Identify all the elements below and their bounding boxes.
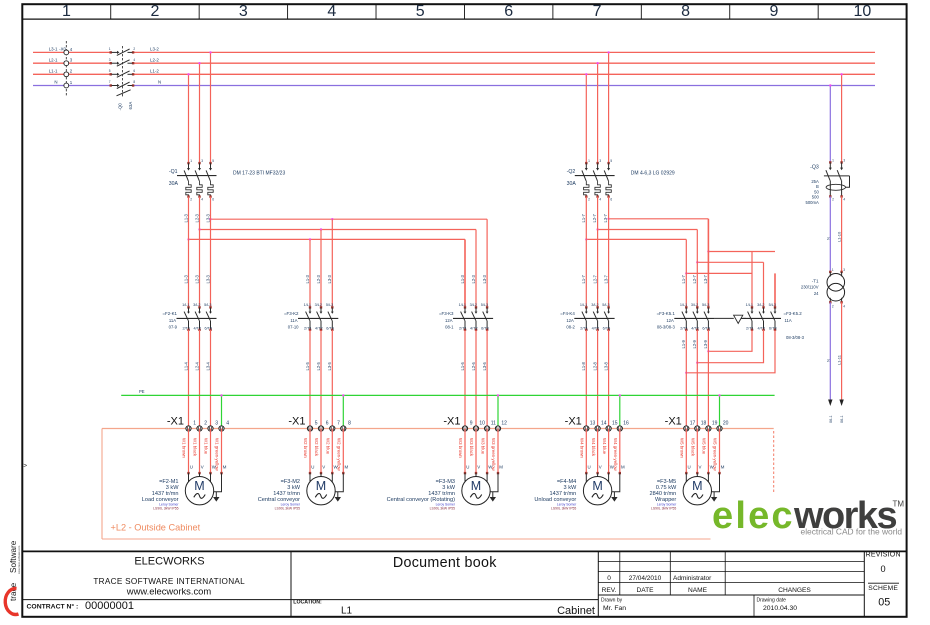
svg-text:=F3-K5.2: =F3-K5.2 (784, 311, 803, 316)
svg-text:3/L2: 3/L2 (691, 303, 698, 307)
svg-text:L2-9: L2-9 (692, 339, 697, 348)
svg-text:L3-9: L3-9 (703, 339, 708, 348)
svg-text:3: 3 (843, 159, 845, 163)
svg-text:11A: 11A (169, 318, 176, 323)
svg-text:L1-7: L1-7 (681, 274, 686, 283)
svg-text:10: 10 (853, 3, 871, 20)
svg-text:0: 0 (880, 564, 885, 574)
svg-text:63A: 63A (128, 102, 133, 110)
svg-text:07-10: 07-10 (288, 324, 299, 329)
svg-text:L3-3: L3-3 (327, 274, 332, 283)
svg-text:W3 blue: W3 blue (480, 438, 485, 455)
svg-text:1: 1 (190, 159, 192, 163)
svg-text:LS90L 3kW IP55: LS90L 3kW IP55 (153, 507, 178, 511)
svg-text:3/L2: 3/L2 (315, 303, 322, 307)
svg-text:TM: TM (893, 500, 905, 509)
svg-text:08-2: 08-2 (566, 324, 575, 329)
svg-text:5: 5 (610, 159, 612, 163)
svg-text:DM 4-6,3 LG 02929: DM 4-6,3 LG 02929 (631, 171, 675, 177)
svg-text:4: 4 (599, 198, 601, 202)
svg-text:=F2-K1: =F2-K1 (162, 311, 177, 316)
svg-text:=F3-K3: =F3-K3 (439, 311, 454, 316)
svg-text:3/L2: 3/L2 (591, 303, 598, 307)
svg-text:L3-8: L3-8 (603, 361, 608, 370)
svg-text:12A: 12A (666, 318, 674, 323)
svg-text:1: 1 (193, 421, 196, 427)
svg-text:-Q1: -Q1 (169, 169, 178, 175)
svg-text:L2-7: L2-7 (692, 274, 697, 283)
svg-text:L1-3: L1-3 (460, 274, 465, 283)
svg-text:-Q3: -Q3 (810, 165, 819, 171)
svg-text:8: 8 (348, 421, 351, 427)
svg-text:N: N (825, 359, 830, 362)
svg-text:30A: 30A (567, 181, 577, 187)
svg-text:L1-11: L1-11 (836, 354, 841, 365)
svg-text:1/L1: 1/L1 (304, 303, 311, 307)
svg-text:L2-2: L2-2 (150, 57, 159, 62)
svg-text:20: 20 (723, 421, 729, 427)
svg-text:2: 2 (133, 47, 135, 51)
svg-text:13: 13 (590, 421, 596, 427)
svg-text:U: U (311, 464, 314, 469)
svg-text:L1-3: L1-3 (183, 213, 188, 222)
svg-text:V: V (477, 464, 480, 469)
svg-text:-T1: -T1 (812, 278, 819, 283)
svg-text:N: N (54, 80, 57, 85)
svg-text:N: N (158, 80, 161, 85)
svg-text:8: 8 (681, 3, 690, 20)
svg-text:5: 5 (212, 159, 214, 163)
svg-text:5/L3: 5/L3 (702, 303, 709, 307)
svg-text:L1-6: L1-6 (460, 361, 465, 370)
svg-text:L3-3: L3-3 (205, 213, 210, 222)
svg-text:L1-3: L1-3 (183, 274, 188, 283)
svg-text:L1-4: L1-4 (183, 361, 188, 370)
svg-text:M: M (621, 464, 625, 469)
svg-text:M: M (499, 464, 503, 469)
svg-text:V: V (699, 464, 702, 469)
svg-text:Drawn by: Drawn by (601, 598, 623, 604)
svg-text:L3-3: L3-3 (482, 274, 487, 283)
svg-text:M: M (692, 479, 702, 493)
svg-text:TRACE SOFTWARE INTERNATIONAL: TRACE SOFTWARE INTERNATIONAL (93, 577, 245, 586)
svg-text:2: 2 (150, 3, 159, 20)
svg-text:L1-10: L1-10 (836, 231, 841, 242)
svg-text:11A: 11A (290, 318, 297, 323)
svg-text:LOCATION:: LOCATION: (293, 599, 322, 605)
svg-text:3/L2: 3/L2 (757, 303, 764, 307)
svg-text:2: 2 (190, 198, 192, 202)
svg-text:3: 3 (599, 159, 601, 163)
svg-text:N: N (825, 237, 830, 240)
svg-text:15: 15 (612, 421, 618, 427)
svg-text:500mA: 500mA (806, 200, 819, 205)
svg-text:1: 1 (109, 47, 111, 51)
svg-text:24: 24 (814, 291, 819, 296)
svg-text:L1-7: L1-7 (581, 274, 586, 283)
svg-text:W1 blue: W1 blue (204, 438, 209, 455)
svg-text:L2-8: L2-8 (592, 361, 597, 370)
svg-text:5/L3: 5/L3 (602, 303, 609, 307)
svg-text:L3-6: L3-6 (482, 361, 487, 370)
svg-text:230/110V: 230/110V (801, 285, 819, 290)
svg-text:30A: 30A (169, 181, 179, 187)
svg-text:3: 3 (843, 268, 845, 272)
svg-text:1: 1 (62, 3, 71, 20)
svg-text:L1-9: L1-9 (681, 339, 686, 348)
svg-text:www.trace-software.com: www.trace-software.com (17, 546, 21, 574)
svg-text:-X1: -X1 (443, 416, 460, 428)
svg-text:7: 7 (337, 421, 340, 427)
svg-text:W5 blue: W5 blue (702, 438, 707, 455)
svg-text:L2-7: L2-7 (592, 274, 597, 283)
svg-text:16: 16 (623, 421, 629, 427)
svg-text:W3 black: W3 black (469, 438, 474, 457)
svg-text:3/L2: 3/L2 (470, 303, 477, 307)
svg-text:M: M (721, 464, 725, 469)
svg-text:L3-1: L3-1 (49, 47, 58, 52)
svg-text:00000001: 00000001 (85, 600, 134, 612)
svg-text:3: 3 (201, 159, 203, 163)
svg-text:Cabinet: Cabinet (557, 605, 595, 617)
svg-text:L2-3: L2-3 (194, 213, 199, 222)
svg-text:27/04/2010: 27/04/2010 (629, 575, 662, 582)
svg-text:L1-2: L1-2 (150, 69, 159, 74)
svg-text:12: 12 (501, 421, 507, 427)
svg-text:08-3/08-3: 08-3/08-3 (657, 324, 676, 329)
svg-text:6: 6 (133, 69, 135, 73)
svg-text:L3-4: L3-4 (205, 361, 210, 370)
svg-text:4: 4 (201, 198, 203, 202)
svg-text:08-1: 08-1 (445, 324, 454, 329)
svg-text:W4 brown: W4 brown (580, 438, 585, 458)
svg-text:elec: elec (712, 495, 795, 537)
svg-text:-X1: -X1 (565, 416, 582, 428)
svg-text:2: 2 (832, 304, 834, 308)
svg-text:M: M (194, 479, 204, 493)
svg-text:REV.: REV. (602, 587, 617, 594)
svg-text:W1 black: W1 black (193, 438, 198, 457)
svg-text:=F3-K2: =F3-K2 (284, 311, 299, 316)
svg-text:9: 9 (770, 3, 779, 20)
svg-text:CONTRACT N° :: CONTRACT N° : (27, 603, 79, 611)
svg-text:L2-3: L2-3 (316, 274, 321, 283)
svg-text:www.elecworks.com: www.elecworks.com (126, 586, 212, 597)
svg-text:3: 3 (109, 58, 111, 62)
svg-text:1/L1: 1/L1 (459, 303, 466, 307)
svg-text:W2 brown: W2 brown (303, 438, 308, 458)
svg-text:Drawing date: Drawing date (757, 598, 787, 604)
svg-text:W2 black: W2 black (314, 438, 319, 457)
svg-text:-Q0: -Q0 (118, 103, 123, 111)
svg-text:L1-3: L1-3 (305, 274, 310, 283)
svg-text:1: 1 (588, 159, 590, 163)
svg-text:Mr. Fan: Mr. Fan (603, 605, 626, 612)
svg-text:L1-7: L1-7 (581, 213, 586, 222)
svg-text:9: 9 (470, 421, 473, 427)
svg-text:W5 black: W5 black (691, 438, 696, 457)
svg-text:1: 1 (832, 268, 834, 272)
svg-text:L3-7: L3-7 (703, 274, 708, 283)
svg-text:-Q2: -Q2 (567, 169, 576, 175)
svg-text:5: 5 (416, 3, 425, 20)
svg-text:LS90L 3kW IP55: LS90L 3kW IP55 (651, 507, 676, 511)
svg-text:1/L1: 1/L1 (580, 303, 587, 307)
svg-text:M: M (316, 479, 326, 493)
svg-text:17: 17 (690, 421, 696, 427)
svg-text:05: 05 (878, 596, 890, 608)
svg-text:5/L3: 5/L3 (769, 303, 776, 307)
svg-text:U: U (588, 464, 591, 469)
svg-text:V: V (599, 464, 602, 469)
svg-text:CHANGES: CHANGES (778, 587, 811, 594)
svg-text:M: M (592, 479, 602, 493)
svg-text:5: 5 (109, 69, 111, 73)
svg-text:12A: 12A (566, 318, 574, 323)
svg-text:12A: 12A (445, 318, 453, 323)
svg-text:08-3/08-3: 08-3/08-3 (786, 335, 805, 340)
svg-text:2: 2 (832, 197, 834, 201)
svg-text:3: 3 (215, 421, 218, 427)
svg-text:W1 brown: W1 brown (182, 438, 187, 458)
svg-text:5/L3: 5/L3 (326, 303, 333, 307)
svg-text:U: U (466, 464, 469, 469)
svg-text:NAME: NAME (688, 587, 708, 594)
svg-text:11: 11 (491, 421, 496, 427)
svg-text:LS90L 3kW IP55: LS90L 3kW IP55 (430, 507, 455, 511)
svg-text:M: M (471, 479, 481, 493)
svg-text:DM 17-23 BTI MF32/23: DM 17-23 BTI MF32/23 (233, 171, 285, 177)
svg-text:19: 19 (712, 421, 718, 427)
svg-text:1: 1 (832, 159, 834, 163)
svg-text:+L2 - Outside Cabinet: +L2 - Outside Cabinet (111, 523, 201, 533)
svg-text:L1: L1 (341, 606, 353, 617)
svg-text:LS90L 3kW IP55: LS90L 3kW IP55 (275, 507, 300, 511)
svg-text:electrical CAD for the world: electrical CAD for the world (801, 527, 903, 537)
svg-text:-X1: -X1 (288, 416, 305, 428)
svg-text:Document book: Document book (393, 555, 497, 571)
svg-text:-X1: -X1 (665, 416, 682, 428)
svg-text:LS90L 3kW IP55: LS90L 3kW IP55 (551, 507, 576, 511)
svg-text:2010.04.30: 2010.04.30 (763, 605, 797, 612)
svg-text:3: 3 (239, 3, 248, 20)
svg-text:W3 brown: W3 brown (458, 438, 463, 458)
svg-text:2: 2 (204, 421, 207, 427)
svg-text:2: 2 (588, 198, 590, 202)
svg-text:L2-7: L2-7 (592, 213, 597, 222)
svg-text:1/L1: 1/L1 (746, 303, 753, 307)
svg-text:L2-4: L2-4 (194, 361, 199, 370)
svg-text:L3-2: L3-2 (150, 47, 159, 52)
svg-text:L1-5: L1-5 (305, 361, 310, 370)
svg-text:V: V (201, 464, 204, 469)
svg-text:Administrator: Administrator (673, 575, 712, 582)
svg-text:10: 10 (479, 421, 485, 427)
svg-text:4: 4 (843, 197, 845, 201)
svg-text:4: 4 (843, 304, 845, 308)
svg-text:4: 4 (327, 3, 336, 20)
svg-text:DATE: DATE (636, 587, 654, 594)
svg-text:07-9: 07-9 (169, 324, 178, 329)
svg-text:6: 6 (212, 198, 214, 202)
svg-text:W4 blue: W4 blue (602, 438, 607, 455)
svg-text:U: U (688, 464, 691, 469)
svg-text:L2-3: L2-3 (471, 274, 476, 283)
svg-text:5/L3: 5/L3 (204, 303, 211, 307)
svg-text:4: 4 (226, 421, 229, 427)
svg-text:U: U (190, 464, 193, 469)
svg-text:3/L2: 3/L2 (193, 303, 200, 307)
svg-text:V: V (322, 464, 325, 469)
svg-text:L2-6: L2-6 (471, 361, 476, 370)
svg-text:Software: Software (9, 540, 18, 573)
svg-text:06-1: 06-1 (829, 415, 833, 423)
svg-text:14: 14 (601, 421, 607, 427)
svg-text:REVISION: REVISION (866, 552, 901, 559)
svg-text:L2-3: L2-3 (194, 274, 199, 283)
svg-text:L3-7: L3-7 (603, 213, 608, 222)
svg-text:1/L1: 1/L1 (680, 303, 687, 307)
svg-text:7: 7 (593, 3, 602, 20)
svg-text:>: > (23, 463, 27, 470)
svg-text:6: 6 (504, 3, 513, 20)
svg-text:18: 18 (701, 421, 707, 427)
svg-text:L3-5: L3-5 (327, 361, 332, 370)
svg-text:W2 blue: W2 blue (326, 438, 331, 455)
svg-text:6: 6 (610, 198, 612, 202)
svg-text:ELECWORKS: ELECWORKS (134, 556, 204, 568)
svg-text:5: 5 (315, 421, 318, 427)
svg-text:06-1: 06-1 (840, 415, 844, 423)
svg-text:-X1: -X1 (167, 416, 184, 428)
svg-text:PE: PE (139, 389, 145, 394)
svg-text:=F4-K4: =F4-K4 (560, 311, 575, 316)
svg-text:7: 7 (109, 80, 111, 84)
svg-text:L2-5: L2-5 (316, 361, 321, 370)
svg-text:L1-1: L1-1 (49, 69, 58, 74)
svg-text:=F3-K5.1: =F3-K5.1 (657, 311, 676, 316)
svg-text:W5 brown: W5 brown (680, 438, 685, 458)
svg-text:L1-8: L1-8 (581, 361, 586, 370)
svg-text:L3-3: L3-3 (205, 274, 210, 283)
svg-text:8: 8 (133, 80, 135, 84)
svg-text:5/L3: 5/L3 (481, 303, 488, 307)
svg-text:M: M (223, 464, 227, 469)
svg-text:0: 0 (607, 575, 611, 582)
svg-text:L2-1: L2-1 (49, 57, 58, 62)
svg-text:4: 4 (133, 58, 135, 62)
svg-text:SCHEME: SCHEME (868, 585, 898, 592)
svg-text:L3-7: L3-7 (603, 274, 608, 283)
svg-text:M: M (345, 464, 349, 469)
svg-text:W4 black: W4 black (591, 438, 596, 457)
svg-text:1/L1: 1/L1 (182, 303, 189, 307)
svg-text:11A: 11A (785, 318, 792, 323)
svg-text:6: 6 (326, 421, 329, 427)
